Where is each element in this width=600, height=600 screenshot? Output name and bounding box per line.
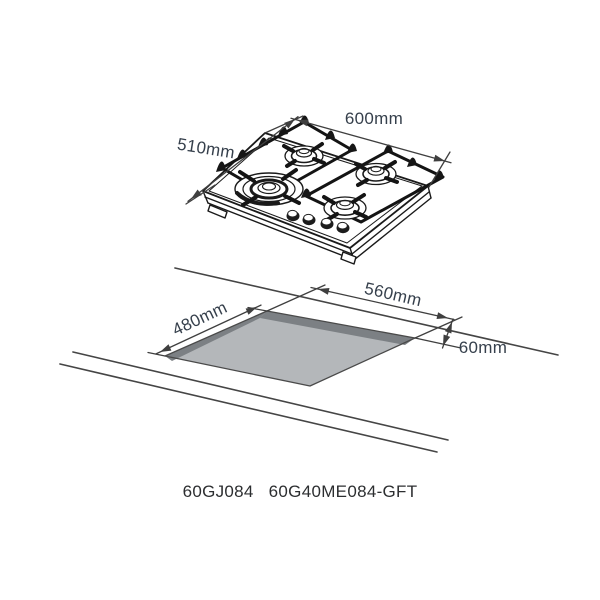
model-number-left: 60GJ084 <box>183 482 254 502</box>
model-numbers: 60GJ08460G40ME084-GFT <box>0 482 600 502</box>
label-hob-width: 600mm <box>341 109 407 129</box>
cutout-isometric-drawing <box>60 268 558 452</box>
label-edge-clearance: 60mm <box>457 338 509 358</box>
model-number-right: 60G40ME084-GFT <box>269 482 418 502</box>
hob-isometric-drawing <box>186 115 451 264</box>
diagram-line-art <box>0 0 600 600</box>
installation-diagram: 600mm 510mm 560mm 480mm 60mm 60GJ08460G4… <box>0 0 600 600</box>
